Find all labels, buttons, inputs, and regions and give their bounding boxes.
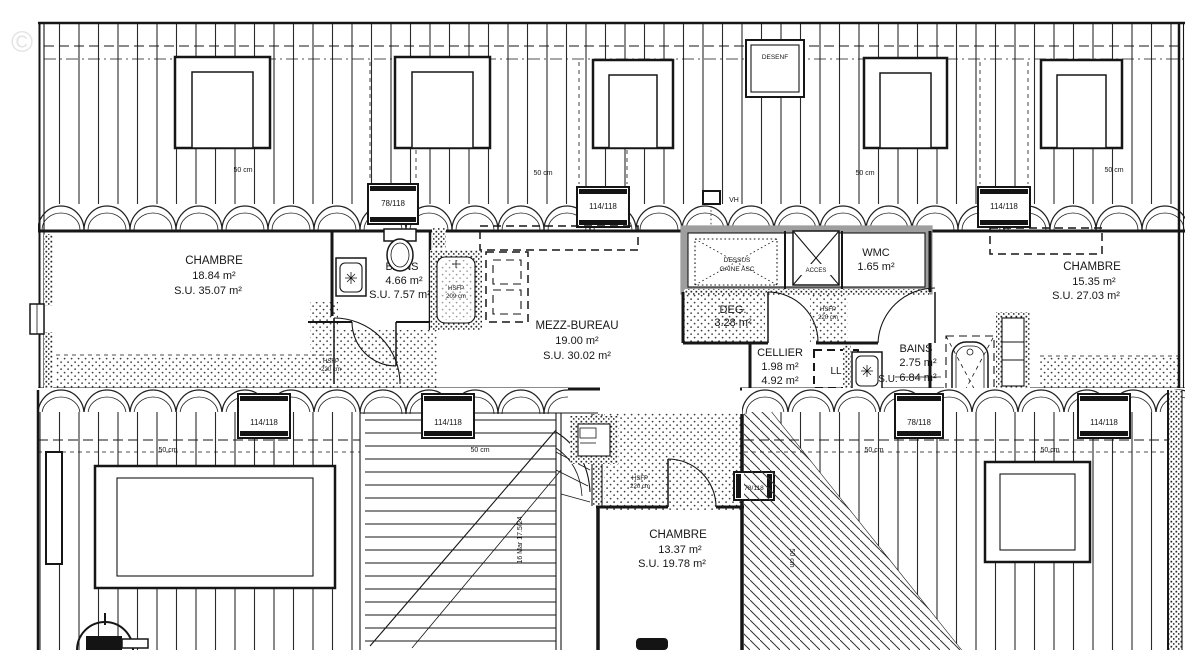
elevator-shaft-block: DESSUS GAINE ASC ACCES WMC 1.65 m²: [681, 226, 932, 295]
svg-text:BAINS: BAINS: [899, 343, 932, 355]
dormer-window: [593, 60, 673, 148]
dim-50cm: 50 cm: [788, 548, 795, 567]
floor-plan-drawing: © DESENF 78/118: [0, 0, 1200, 650]
roof-window-114-118: 114/118: [1078, 394, 1130, 438]
svg-text:S.U. 30.02 m²: S.U. 30.02 m²: [543, 350, 611, 362]
stairs-note: 16 Mar 17.5/24: [517, 516, 524, 563]
svg-text:DESSUS: DESSUS: [724, 257, 751, 264]
svg-text:209 cm: 209 cm: [446, 294, 466, 300]
svg-text:CELLIER: CELLIER: [757, 347, 803, 359]
svg-text:CHAMBRE: CHAMBRE: [1063, 261, 1121, 273]
svg-text:MEZZ-BUREAU: MEZZ-BUREAU: [535, 320, 618, 332]
dim-50cm: 50 cm: [855, 170, 874, 177]
dim-50cm: 50 cm: [533, 170, 552, 177]
dormer-window: [864, 58, 947, 148]
svg-text:S.U. 27.03 m²: S.U. 27.03 m²: [1052, 290, 1120, 302]
dormer-window: [395, 57, 490, 148]
svg-text:ACCES: ACCES: [806, 268, 827, 274]
low-height-zone: [56, 356, 332, 388]
dim-50cm: 50 cm: [158, 447, 177, 454]
low-height-zone: [604, 412, 742, 510]
svg-text:13.37 m²: 13.37 m²: [658, 544, 702, 556]
room-deg: DEG. 3.28 m²: [714, 304, 752, 329]
svg-text:4.66 m²: 4.66 m²: [385, 275, 423, 287]
dim-50cm: 50 cm: [864, 447, 883, 454]
furniture-cutoff: [636, 638, 668, 650]
svg-text:6.84 m²: 6.84 m²: [899, 372, 937, 384]
washbasin-icon: [336, 258, 366, 296]
low-height-zone: [1040, 357, 1178, 388]
svg-text:CHAMBRE: CHAMBRE: [185, 255, 243, 267]
roof-window-78-118: 78/118: [368, 184, 418, 224]
hsfp-label: HSFP: [820, 307, 836, 313]
svg-text:114/118: 114/118: [1090, 418, 1118, 427]
svg-text:18.84 m²: 18.84 m²: [192, 270, 236, 282]
room-cellier: CELLIER 1.98 m² 4.92 m²: [757, 347, 803, 387]
elevator-access-hatch: ACCES: [793, 231, 839, 285]
toilet-icon: [384, 229, 416, 271]
svg-text:78/118: 78/118: [381, 199, 405, 208]
svg-text:4.92 m²: 4.92 m²: [761, 375, 799, 387]
desenf-label: DESENF: [762, 54, 788, 61]
svg-text:114/118: 114/118: [990, 202, 1018, 211]
desenf-smoke-vent: DESENF: [746, 40, 804, 97]
svg-text:CHAMBRE: CHAMBRE: [649, 529, 707, 541]
svg-text:114/118: 114/118: [589, 202, 617, 211]
roof-window-114-118: 114/118: [422, 394, 474, 438]
dim-50cm: 50 cm: [1040, 447, 1059, 454]
svg-text:19.00 m²: 19.00 m²: [555, 335, 599, 347]
roof-window-114-118: 114/118: [238, 394, 290, 438]
dormer-opening: [95, 466, 335, 588]
dormer-window: [175, 57, 270, 148]
svg-text:1.65 m²: 1.65 m²: [857, 261, 895, 273]
dim-50cm: 50 cm: [470, 447, 489, 454]
svg-text:S.U. 35.07 m²: S.U. 35.07 m²: [174, 285, 242, 297]
svg-text:S.U.: S.U.: [878, 374, 897, 385]
left-wall-window: [30, 304, 44, 334]
hsfp-label: HSFP: [632, 476, 648, 482]
svg-text:HSFP: HSFP: [448, 286, 464, 292]
svg-text:78/118: 78/118: [907, 418, 931, 427]
dormer-window: [1041, 60, 1122, 148]
svg-text:15.35 m²: 15.35 m²: [1072, 276, 1116, 288]
bottom-roof-band: 114/118 50 cm 16 Mar 17.5/24 114/118 50 …: [38, 388, 1185, 650]
dim-50cm: 50 cm: [1104, 167, 1123, 174]
dormer-opening: [985, 462, 1090, 562]
copyright-watermark: ©: [11, 26, 33, 59]
top-roof-band: DESENF 78/118 114/118 114/118 50 cm 50 c…: [38, 22, 1185, 230]
svg-text:GAINE ASC: GAINE ASC: [719, 266, 754, 273]
hsfp-label: HSFP: [323, 359, 339, 365]
roof-tile-edge: [38, 388, 568, 414]
svg-text:2.75 m²: 2.75 m²: [899, 357, 937, 369]
closet-shelves: [996, 312, 1030, 392]
svg-text:WMC: WMC: [862, 247, 890, 259]
gable-wall: [1168, 390, 1182, 650]
svg-text:1.98 m²: 1.98 m²: [761, 361, 799, 373]
low-height-zone: [338, 330, 438, 388]
roof-window-114-118: 114/118: [978, 187, 1030, 227]
roof-window-114-118: 114/118: [577, 187, 629, 227]
duct-enclosure: [570, 416, 618, 464]
svg-text:S.U. 7.57 m²: S.U. 7.57 m²: [369, 289, 431, 301]
roof-window-78-118: 78/118: [895, 394, 943, 438]
svg-text:VH: VH: [729, 197, 739, 204]
svg-text:114/118: 114/118: [250, 418, 278, 427]
svg-text:LL: LL: [830, 366, 842, 377]
floor-plan-page: © DESENF 78/118: [0, 0, 1200, 650]
hsfp-value: 220 cm: [818, 315, 838, 321]
svg-text:DEG.: DEG.: [720, 304, 747, 316]
svg-text:114/118: 114/118: [434, 418, 462, 427]
svg-text:S.U. 19.78 m²: S.U. 19.78 m²: [638, 558, 706, 570]
shower-icon: HSFP 209 cm: [430, 250, 482, 330]
hsfp-value: 220 cm: [630, 484, 650, 490]
hsfp-value: 220 cm: [321, 367, 341, 373]
dim-50cm: 50 cm: [233, 167, 252, 174]
svg-text:3.28 m²: 3.28 m²: [714, 317, 752, 329]
